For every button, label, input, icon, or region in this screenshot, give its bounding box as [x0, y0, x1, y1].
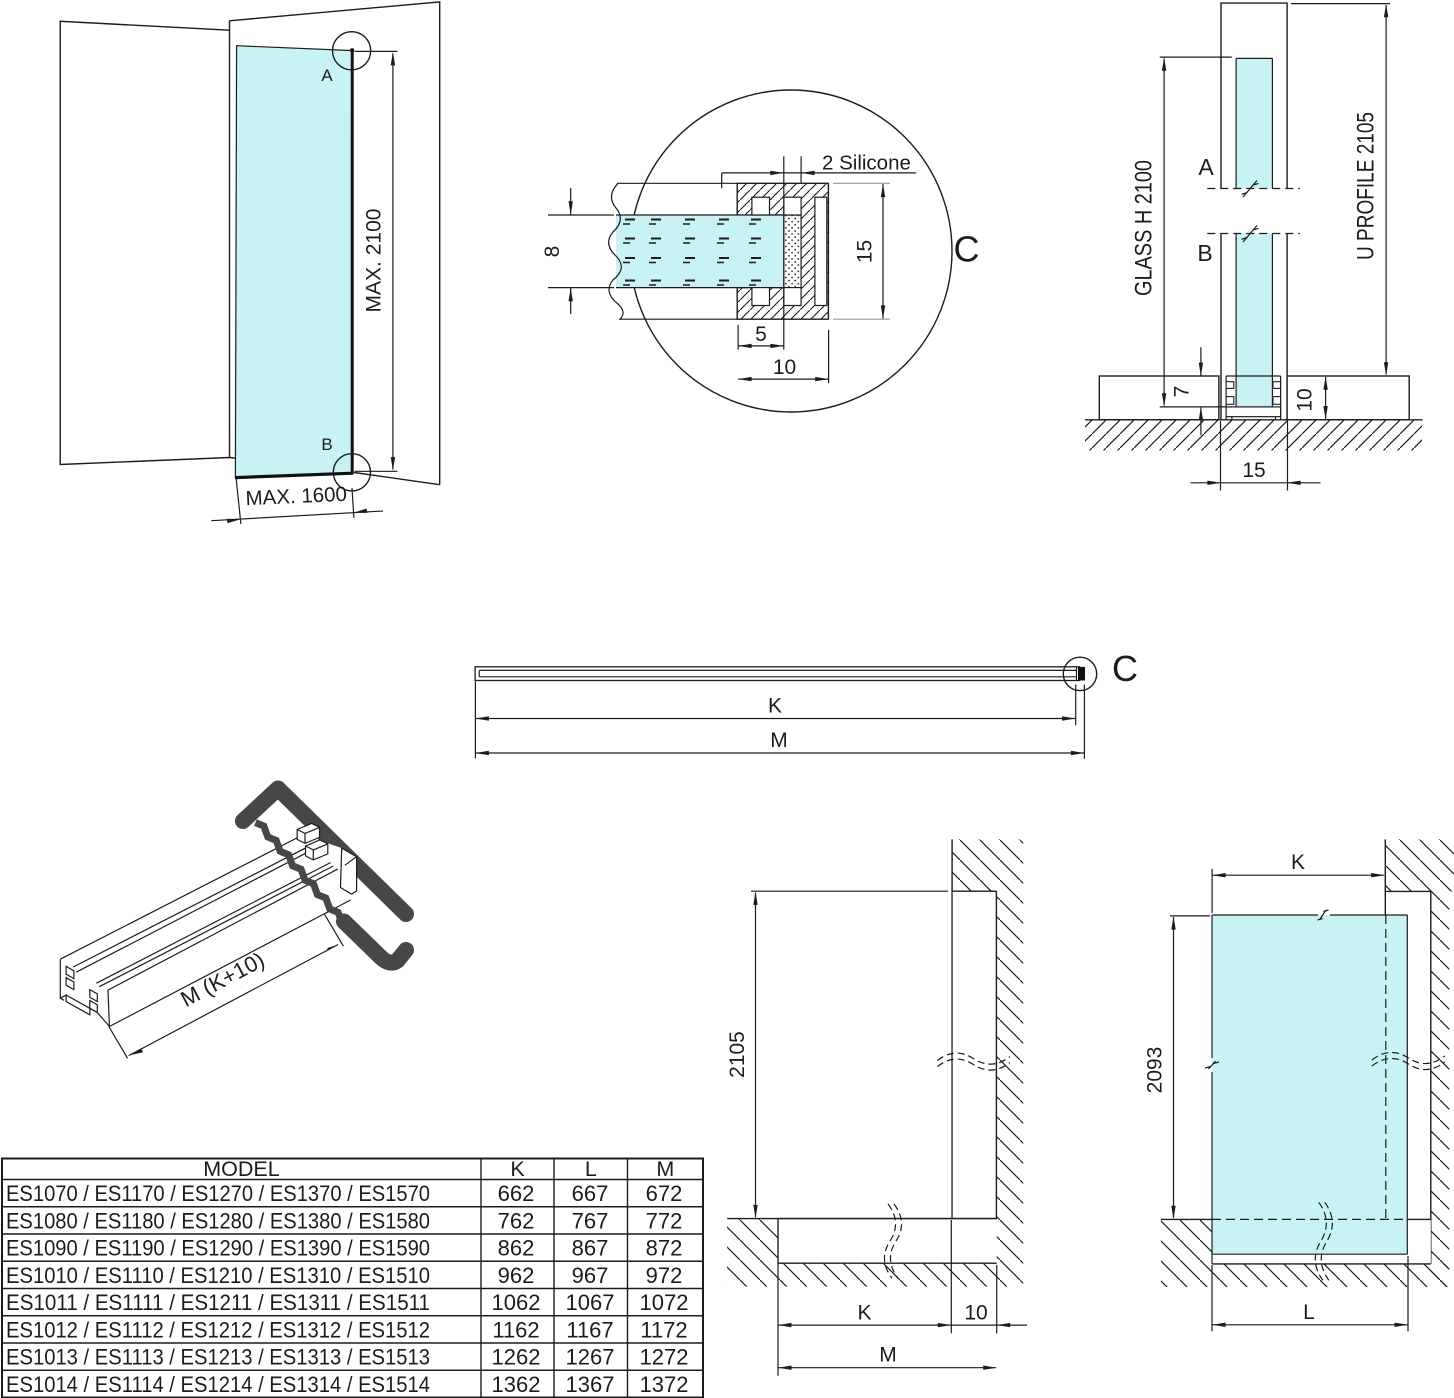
svg-text:15: 15	[1242, 459, 1265, 482]
svg-text:5: 5	[755, 323, 767, 346]
svg-text:A: A	[1198, 154, 1214, 180]
svg-text:10: 10	[1294, 388, 1317, 411]
svg-text:1367: 1367	[566, 1372, 615, 1397]
svg-text:1172: 1172	[640, 1317, 687, 1342]
svg-text:1272: 1272	[640, 1345, 689, 1370]
svg-text:962: 962	[498, 1263, 535, 1288]
svg-text:1072: 1072	[640, 1290, 689, 1315]
svg-text:B: B	[1197, 240, 1212, 266]
svg-text:2093: 2093	[1144, 1047, 1167, 1094]
svg-text:872: 872	[646, 1236, 683, 1261]
svg-text:867: 867	[572, 1236, 609, 1261]
svg-text:1162: 1162	[492, 1317, 539, 1342]
svg-text:B: B	[321, 435, 332, 454]
svg-text:15: 15	[854, 240, 877, 263]
svg-text:ES1013 / ES1113 / ES1213 / ES1: ES1013 / ES1113 / ES1213 / ES1313 / ES15…	[6, 1345, 430, 1370]
svg-text:1267: 1267	[566, 1345, 615, 1370]
svg-text:ES1070 / ES1170 / ES1270 / ES1: ES1070 / ES1170 / ES1270 / ES1370 / ES15…	[6, 1181, 430, 1206]
svg-text:2 Silicone: 2 Silicone	[822, 152, 911, 175]
svg-text:C: C	[1112, 648, 1138, 689]
svg-text:ES1010 / ES1110 / ES1210 / ES1: ES1010 / ES1110 / ES1210 / ES1310 / ES15…	[6, 1263, 430, 1288]
svg-text:M: M	[770, 729, 788, 752]
svg-text:GLASS H 2100: GLASS H 2100	[1131, 160, 1158, 296]
svg-text:ES1014 / ES1114 / ES1214 / ES1: ES1014 / ES1114 / ES1214 / ES1314 / ES15…	[6, 1372, 430, 1397]
svg-text:1262: 1262	[492, 1345, 541, 1370]
svg-text:7: 7	[1171, 386, 1194, 398]
svg-text:862: 862	[498, 1236, 535, 1261]
svg-text:MAX. 1600: MAX. 1600	[245, 483, 347, 511]
svg-text:1167: 1167	[566, 1317, 613, 1342]
svg-text:M: M	[656, 1157, 674, 1181]
svg-text:K: K	[1291, 851, 1305, 874]
svg-text:2105: 2105	[726, 1031, 749, 1078]
svg-text:972: 972	[646, 1263, 683, 1288]
svg-text:MODEL: MODEL	[203, 1157, 280, 1181]
svg-text:1362: 1362	[492, 1372, 541, 1397]
svg-text:672: 672	[646, 1181, 683, 1206]
svg-text:8: 8	[541, 246, 564, 258]
svg-text:L: L	[585, 1157, 597, 1181]
svg-text:ES1080 / ES1180 / ES1280 / ES1: ES1080 / ES1180 / ES1280 / ES1380 / ES15…	[6, 1208, 430, 1233]
svg-text:662: 662	[498, 1181, 535, 1206]
svg-text:10: 10	[773, 356, 796, 379]
svg-text:A: A	[321, 66, 333, 85]
svg-text:762: 762	[498, 1208, 535, 1233]
svg-text:U PROFILE 2105: U PROFILE 2105	[1353, 112, 1380, 260]
svg-text:10: 10	[964, 1302, 987, 1325]
svg-text:C: C	[954, 229, 980, 270]
svg-text:ES1090 / ES1190 / ES1290 / ES1: ES1090 / ES1190 / ES1290 / ES1390 / ES15…	[6, 1236, 430, 1261]
svg-text:1067: 1067	[566, 1290, 615, 1315]
svg-text:772: 772	[646, 1208, 683, 1233]
svg-text:1062: 1062	[492, 1290, 541, 1315]
svg-text:M: M	[879, 1344, 897, 1367]
svg-text:967: 967	[572, 1263, 609, 1288]
svg-text:1372: 1372	[640, 1372, 689, 1397]
svg-text:K: K	[857, 1302, 871, 1325]
svg-text:MAX. 2100: MAX. 2100	[363, 209, 386, 313]
svg-text:K: K	[768, 695, 782, 718]
svg-text:L: L	[1303, 1301, 1315, 1324]
svg-text:K: K	[510, 1157, 525, 1181]
svg-text:667: 667	[572, 1181, 609, 1206]
svg-text:ES1011 / ES1111 / ES1211 / ES1: ES1011 / ES1111 / ES1211 / ES1311 / ES15…	[6, 1290, 430, 1315]
svg-text:ES1012 / ES1112 / ES1212 / ES1: ES1012 / ES1112 / ES1212 / ES1312 / ES15…	[6, 1317, 430, 1342]
svg-text:767: 767	[572, 1208, 609, 1233]
